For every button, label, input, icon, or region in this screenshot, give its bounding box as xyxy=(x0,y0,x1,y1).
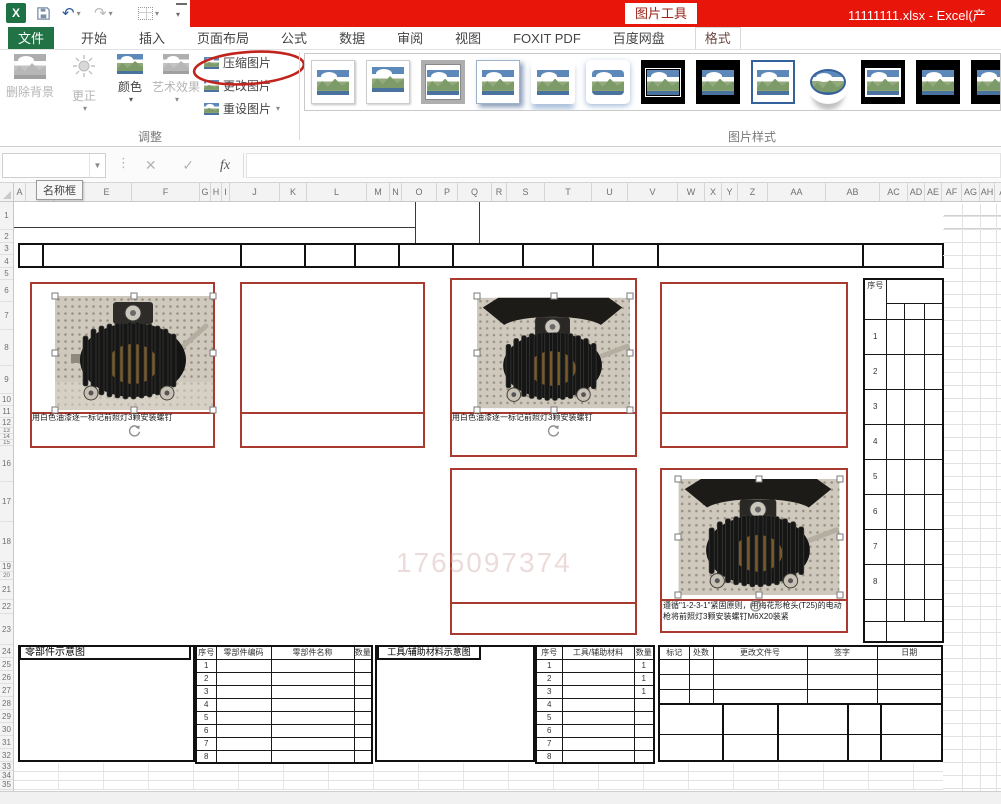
column-header-T[interactable]: T xyxy=(545,183,592,201)
rotate-handle[interactable] xyxy=(546,423,561,443)
row-header-6[interactable]: 6 xyxy=(0,280,13,302)
tab-页面布局[interactable]: 页面布局 xyxy=(192,27,254,49)
selection-handle[interactable] xyxy=(756,476,763,483)
photo-cell-4[interactable] xyxy=(660,282,848,448)
row-header-11[interactable]: 11 xyxy=(0,406,13,418)
serial-cell[interactable] xyxy=(924,319,943,354)
column-header-A[interactable]: A xyxy=(14,183,26,201)
serial-cell[interactable] xyxy=(904,319,924,354)
row-header-25[interactable]: 25 xyxy=(0,658,13,671)
selection-handle[interactable] xyxy=(474,407,481,414)
formula-bar: ▼ ⋮ ✕ ✓ fx xyxy=(0,147,1001,183)
table-row[interactable]: 8 xyxy=(196,750,372,763)
change-picture-button[interactable]: 更改图片 xyxy=(204,77,280,94)
row-header-23[interactable]: 23 xyxy=(0,614,13,645)
row-header-28[interactable]: 28 xyxy=(0,697,13,710)
column-header-Z[interactable]: Z xyxy=(738,183,768,201)
selection-handle[interactable] xyxy=(131,293,138,300)
table-row[interactable]: 8 xyxy=(536,750,654,763)
row-header-16[interactable]: 16 xyxy=(0,446,13,482)
picture-style-partial-style[interactable] xyxy=(971,60,1001,104)
serial-cell[interactable] xyxy=(904,424,924,459)
row-header-7[interactable]: 7 xyxy=(0,302,13,330)
landscape-thumbnail-icon xyxy=(867,70,899,95)
column-header-L[interactable]: L xyxy=(307,183,367,201)
column-header-U[interactable]: U xyxy=(592,183,628,201)
picture-styles-group-label: 图片样式 xyxy=(728,128,776,145)
artistic-effects-button: 艺术效果 ▾ xyxy=(152,54,200,104)
headlight-photo-1[interactable] xyxy=(55,296,213,410)
tab-开始[interactable]: 开始 xyxy=(76,27,112,49)
picture-style-moderate-frame-black[interactable] xyxy=(916,60,960,104)
row-header-2[interactable]: 2 xyxy=(0,230,13,243)
selection-handle[interactable] xyxy=(210,350,217,357)
excel-window: X ↶▾ ↷▾ ▾ ▾ 图片工具 11111111.xlsx - Excel(产… xyxy=(0,0,1001,804)
picture-style-beveled-matte-white[interactable] xyxy=(366,60,410,104)
name-box-tooltip: 名称框 xyxy=(36,180,83,200)
rotate-handle[interactable] xyxy=(127,423,142,443)
row-header-18[interactable]: 18 xyxy=(0,522,13,562)
column-header-J[interactable]: J xyxy=(230,183,280,201)
picture-styles-gallery xyxy=(304,53,1001,111)
name-box-dropdown-icon[interactable]: ▼ xyxy=(89,154,105,177)
row-header-21[interactable]: 21 xyxy=(0,580,13,600)
row-header-10[interactable]: 10 xyxy=(0,394,13,406)
parts-diagram-area[interactable] xyxy=(18,645,195,762)
row-header-1[interactable]: 1 xyxy=(0,202,13,230)
enter-icon: ✓ xyxy=(182,157,194,174)
parts-col-零部件名称: 零部件名称 xyxy=(271,646,354,659)
revision-col-签字: 签字 xyxy=(807,646,877,659)
column-header-E[interactable]: E xyxy=(82,183,132,201)
row-header-33[interactable]: 33 xyxy=(0,762,13,771)
headlight-photo-3[interactable] xyxy=(678,479,840,595)
title-bar: X ↶▾ ↷▾ ▾ ▾ 图片工具 11111111.xlsx - Excel(产 xyxy=(0,0,1001,27)
column-header-W[interactable]: W xyxy=(678,183,705,201)
tab-FOXIT PDF[interactable]: FOXIT PDF xyxy=(508,27,586,49)
table-row[interactable] xyxy=(659,674,942,689)
landscape-thumbnail-icon xyxy=(977,70,1001,95)
column-header-AA[interactable]: AA xyxy=(768,183,826,201)
name-box[interactable]: ▼ xyxy=(2,153,106,178)
serial-row-3: 3 xyxy=(864,389,886,424)
row-header-32[interactable]: 32 xyxy=(0,749,13,762)
picture-style-metal-frame[interactable] xyxy=(421,60,465,104)
table-row[interactable]: 1 xyxy=(196,659,372,672)
cell-border xyxy=(479,202,480,243)
sun-icon xyxy=(72,54,96,78)
reset-picture-button[interactable]: 重设图片▾ xyxy=(204,100,280,117)
serial-cell[interactable] xyxy=(886,424,904,459)
signature-block xyxy=(658,703,943,762)
table-row[interactable]: 6 xyxy=(536,724,654,737)
row-header-22[interactable]: 22 xyxy=(0,600,13,614)
selection-handle[interactable] xyxy=(550,407,557,414)
table-preview-icon[interactable]: ▾ xyxy=(138,3,159,23)
formula-input[interactable] xyxy=(246,153,1001,178)
column-header-AH[interactable]: AH xyxy=(980,183,995,201)
table-row[interactable]: 5 xyxy=(536,711,654,724)
serial-row-8: 8 xyxy=(864,564,886,599)
ribbon: 删除背景 更正 ▾ 颜色 ▾ 艺术效果 ▾ 压缩图片 更改图片 xyxy=(0,50,1001,147)
serial-row-4: 4 xyxy=(864,424,886,459)
tab-审阅[interactable]: 审阅 xyxy=(392,27,428,49)
table-row[interactable]: 3 xyxy=(196,685,372,698)
serial-cell[interactable] xyxy=(904,494,924,529)
redo-button[interactable]: ↷▾ xyxy=(94,3,113,23)
selection-handle[interactable] xyxy=(675,592,682,599)
qat-customize-button[interactable]: ▾ xyxy=(176,3,187,23)
serial-cell[interactable] xyxy=(924,529,943,564)
row-header-12[interactable]: 12 xyxy=(0,418,13,428)
row-header-4[interactable]: 4 xyxy=(0,255,13,268)
photo-caption-1: 用白色油漆逐一标记前照灯3颗安装螺钉 xyxy=(32,412,212,424)
tools-diagram-label: 工具/辅助材料示意图 xyxy=(377,645,481,660)
revision-col-更改文件号: 更改文件号 xyxy=(713,646,807,659)
column-header-M[interactable]: M xyxy=(367,183,390,201)
row-header-31[interactable]: 31 xyxy=(0,736,13,749)
column-header-I[interactable]: I xyxy=(222,183,230,201)
picture-style-simple-frame-blue[interactable] xyxy=(751,60,795,104)
selection-handle[interactable] xyxy=(627,350,634,357)
selection-handle[interactable] xyxy=(837,534,844,541)
table-row[interactable]: 31 xyxy=(536,685,654,698)
color-button[interactable]: 颜色 ▾ xyxy=(110,54,150,104)
parts-diagram-label: 零部件示意图 xyxy=(19,645,191,660)
table-row[interactable]: 5 xyxy=(196,711,372,724)
selection-handle[interactable] xyxy=(627,407,634,414)
column-header-Y[interactable]: Y xyxy=(722,183,738,201)
selection-handle[interactable] xyxy=(131,407,138,414)
row-headers: 1234567891011121314151617181920212223242… xyxy=(0,202,14,791)
selection-handle[interactable] xyxy=(550,293,557,300)
revision-col-日期: 日期 xyxy=(877,646,942,659)
tab-公式[interactable]: 公式 xyxy=(276,27,312,49)
column-header-AD[interactable]: AD xyxy=(908,183,925,201)
row-header-27[interactable]: 27 xyxy=(0,684,13,697)
change-picture-icon xyxy=(204,80,219,92)
right-gridlines xyxy=(943,204,1001,791)
serial-cell[interactable] xyxy=(924,389,943,424)
select-all-corner[interactable] xyxy=(0,183,14,202)
tab-视图[interactable]: 视图 xyxy=(450,27,486,49)
serial-cell[interactable] xyxy=(924,354,943,389)
column-header-Q[interactable]: Q xyxy=(458,183,492,201)
sheet-canvas[interactable]: 1765097374 xyxy=(0,202,1001,791)
serial-cell[interactable] xyxy=(886,494,904,529)
remove-background-button: 删除背景 xyxy=(4,54,56,100)
cell-border xyxy=(14,227,415,228)
column-header-N[interactable]: N xyxy=(390,183,402,201)
table-row[interactable]: 4 xyxy=(196,698,372,711)
row-header-8[interactable]: 8 xyxy=(0,330,13,366)
landscape-thumbnail-icon xyxy=(427,70,459,95)
tools-diagram-area[interactable] xyxy=(375,645,535,762)
color-icon xyxy=(117,54,143,74)
selection-handle[interactable] xyxy=(210,407,217,414)
column-headers: ABDEFGHIJKLMNOPQRSTUVWXYZAAABACADAEAFAGA… xyxy=(14,183,1001,202)
picture-style-reflected-rounded-rectangle[interactable] xyxy=(531,60,575,104)
column-header-R[interactable]: R xyxy=(492,183,507,201)
serial-row-2: 2 xyxy=(864,354,886,389)
picture-style-double-frame-black[interactable] xyxy=(641,60,685,104)
row-header-5[interactable]: 5 xyxy=(0,268,13,280)
row-header-17[interactable]: 17 xyxy=(0,482,13,522)
tools-col-序号: 序号 xyxy=(536,646,562,659)
table-row[interactable]: 6 xyxy=(196,724,372,737)
compress-pictures-icon xyxy=(204,57,219,69)
selection-handle[interactable] xyxy=(52,350,59,357)
table-row[interactable]: 7 xyxy=(196,737,372,750)
column-header-V[interactable]: V xyxy=(628,183,678,201)
serial-cell[interactable] xyxy=(886,389,904,424)
row-header-30[interactable]: 30 xyxy=(0,723,13,736)
horizontal-scrollbar[interactable] xyxy=(0,791,1001,804)
serial-cell[interactable] xyxy=(886,319,904,354)
row-header-20[interactable]: 20 xyxy=(0,572,13,580)
serial-cell[interactable] xyxy=(904,389,924,424)
picture-style-simple-frame-white[interactable] xyxy=(311,60,355,104)
landscape-thumbnail-icon xyxy=(482,70,514,95)
group-divider xyxy=(299,52,300,140)
table-row[interactable]: 21 xyxy=(536,672,654,685)
column-header-S[interactable]: S xyxy=(507,183,545,201)
landscape-thumbnail-icon xyxy=(702,70,734,95)
column-header-G[interactable]: G xyxy=(200,183,211,201)
serial-header: 序号 xyxy=(864,279,886,319)
serial-cell[interactable] xyxy=(924,494,943,529)
column-header-AE[interactable]: AE xyxy=(925,183,942,201)
photo-cell-2[interactable] xyxy=(240,282,425,448)
parts-col-零部件编码: 零部件编码 xyxy=(216,646,271,659)
picture-style-bevel-oval-black[interactable] xyxy=(806,60,850,104)
landscape-thumbnail-icon xyxy=(592,70,624,95)
insert-function-icon[interactable]: fx xyxy=(220,158,230,174)
serial-number-table[interactable]: 序号12345678 xyxy=(863,278,944,643)
serial-cell[interactable] xyxy=(886,459,904,494)
serial-row-7: 7 xyxy=(864,529,886,564)
excel-logo-icon: X xyxy=(6,3,26,23)
serial-cell[interactable] xyxy=(904,354,924,389)
tools-list-table[interactable]: 序号工具/辅助材料数量11213145678 xyxy=(535,645,655,764)
serial-cell[interactable] xyxy=(886,354,904,389)
formula-bar-separator: ⋮ xyxy=(117,155,130,171)
serial-cell[interactable] xyxy=(904,564,924,599)
table-row[interactable] xyxy=(659,659,942,674)
column-header-K[interactable]: K xyxy=(280,183,307,201)
landscape-thumbnail-icon xyxy=(757,70,789,95)
selection-handle[interactable] xyxy=(627,293,634,300)
column-header-AG[interactable]: AG xyxy=(962,183,980,201)
table-row[interactable] xyxy=(659,689,942,704)
serial-cell[interactable] xyxy=(904,529,924,564)
tab-file[interactable]: 文件 xyxy=(8,27,54,49)
landscape-thumbnail-icon xyxy=(922,70,954,95)
tools-col-工具/辅助材料: 工具/辅助材料 xyxy=(562,646,634,659)
serial-row-5: 5 xyxy=(864,459,886,494)
column-header-AI[interactable]: AI xyxy=(995,183,1001,201)
window-title: 11111111.xlsx - Excel(产 xyxy=(848,5,1001,23)
column-header-O[interactable]: O xyxy=(402,183,437,201)
parts-col-数量: 数量 xyxy=(354,646,372,659)
serial-cell[interactable] xyxy=(924,459,943,494)
selection-handle[interactable] xyxy=(52,293,59,300)
tools-col-数量: 数量 xyxy=(634,646,654,659)
cancel-icon: ✕ xyxy=(145,157,157,174)
serial-cell[interactable] xyxy=(924,424,943,459)
selection-handle[interactable] xyxy=(474,293,481,300)
watermark: 1765097374 xyxy=(396,547,572,579)
tab-format[interactable]: 格式 xyxy=(695,27,741,49)
title-header-row xyxy=(18,243,944,268)
column-header-H[interactable]: H xyxy=(211,183,222,201)
table-row[interactable]: 4 xyxy=(536,698,654,711)
picture-style-soft-edge-rectangle[interactable] xyxy=(586,60,630,104)
corrections-button: 更正 ▾ xyxy=(64,54,104,113)
compress-pictures-button[interactable]: 压缩图片 xyxy=(204,54,280,71)
revision-col-标记: 标记 xyxy=(659,646,689,659)
picture-style-compound-frame-black[interactable] xyxy=(861,60,905,104)
parts-col-序号: 序号 xyxy=(196,646,216,659)
selection-handle[interactable] xyxy=(837,592,844,599)
row-header-9[interactable]: 9 xyxy=(0,366,13,394)
row-header-29[interactable]: 29 xyxy=(0,710,13,723)
column-header-P[interactable]: P xyxy=(437,183,458,201)
photo-caption-2: 用白色油漆逐一标记前照灯3颗安装螺钉 xyxy=(452,412,634,424)
column-header-AC[interactable]: AC xyxy=(880,183,908,201)
reset-picture-icon xyxy=(204,103,219,115)
table-row[interactable]: 2 xyxy=(196,672,372,685)
row-header-26[interactable]: 26 xyxy=(0,671,13,684)
headlight-photo-2[interactable] xyxy=(477,296,630,410)
tab-数据[interactable]: 数据 xyxy=(334,27,370,49)
serial-cell[interactable] xyxy=(924,564,943,599)
selection-handle[interactable] xyxy=(837,476,844,483)
picture-style-thick-frame-black[interactable] xyxy=(696,60,740,104)
rotate-handle[interactable] xyxy=(748,598,763,618)
row-header-24[interactable]: 24 xyxy=(0,645,13,658)
adjust-group-label: 调整 xyxy=(138,128,162,145)
selection-handle[interactable] xyxy=(675,534,682,541)
serial-cell[interactable] xyxy=(886,564,904,599)
table-row[interactable]: 11 xyxy=(536,659,654,672)
serial-cell[interactable] xyxy=(904,459,924,494)
artistic-effects-icon xyxy=(163,54,189,74)
column-header-AB[interactable]: AB xyxy=(826,183,880,201)
save-icon[interactable] xyxy=(36,3,51,23)
bottom-gridlines xyxy=(14,763,943,790)
picture-style-drop-shadow-rectangle[interactable] xyxy=(476,60,520,104)
serial-row-6: 6 xyxy=(864,494,886,529)
selection-handle[interactable] xyxy=(474,350,481,357)
tab-插入[interactable]: 插入 xyxy=(134,27,170,49)
column-header-X[interactable]: X xyxy=(705,183,722,201)
ribbon-tab-row: 文件 开始插入页面布局公式数据审阅视图FOXIT PDF百度网盘 格式 xyxy=(0,27,1001,50)
row-header-35[interactable]: 35 xyxy=(0,780,13,790)
landscape-thumbnail-icon xyxy=(372,67,404,92)
column-header-AF[interactable]: AF xyxy=(942,183,962,201)
row-header-3[interactable]: 3 xyxy=(0,243,13,255)
row-header-19[interactable]: 19 xyxy=(0,562,13,572)
selection-handle[interactable] xyxy=(52,407,59,414)
undo-button[interactable]: ↶▾ xyxy=(62,3,81,23)
picture-tools-chip: 图片工具 xyxy=(625,3,697,24)
serial-cell[interactable] xyxy=(886,529,904,564)
table-row[interactable]: 7 xyxy=(536,737,654,750)
landscape-thumbnail-icon xyxy=(647,70,679,95)
landscape-thumbnail-icon xyxy=(810,69,846,95)
row-header-34[interactable]: 34 xyxy=(0,771,13,780)
parts-list-table[interactable]: 序号零部件编码零部件名称数量12345678 xyxy=(195,645,373,764)
selection-handle[interactable] xyxy=(210,293,217,300)
selection-handle[interactable] xyxy=(675,476,682,483)
column-header-F[interactable]: F xyxy=(132,183,200,201)
revision-table[interactable]: 标记处数更改文件号签字日期 xyxy=(658,645,943,705)
remove-background-icon xyxy=(14,54,46,79)
landscape-thumbnail-icon xyxy=(537,70,569,95)
serial-row-1: 1 xyxy=(864,319,886,354)
landscape-thumbnail-icon xyxy=(317,70,349,95)
cell-border xyxy=(415,202,416,243)
revision-col-处数: 处数 xyxy=(689,646,713,659)
tab-百度网盘[interactable]: 百度网盘 xyxy=(608,27,670,49)
